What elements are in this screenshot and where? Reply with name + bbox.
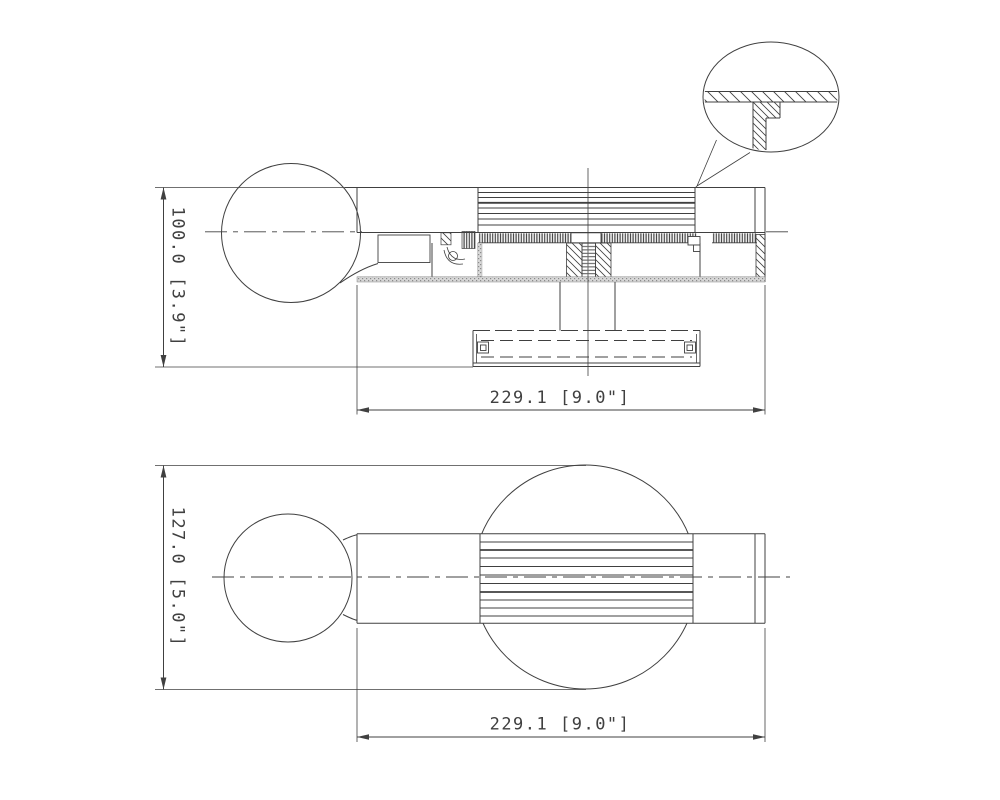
arrowhead-right bbox=[753, 734, 765, 740]
right-step-block-small bbox=[694, 245, 701, 252]
arrowhead-left bbox=[357, 407, 369, 413]
section-width-dim-text: 229.1 [9.0"] bbox=[490, 388, 631, 408]
section-view: 100.0 [3.9"] bbox=[155, 164, 792, 415]
arrowhead-up bbox=[161, 188, 167, 200]
detail-contents bbox=[703, 92, 839, 151]
plan-width-dim-text: 229.1 [9.0"] bbox=[490, 715, 631, 735]
wire-loop bbox=[449, 252, 458, 261]
lamp-body-section bbox=[222, 164, 766, 377]
inner-wall-left bbox=[478, 243, 483, 278]
plan-view: 127.0 [5.0"] 229.1 [9.0"] bbox=[155, 465, 790, 742]
section-width-dimension: 229.1 [9.0"] bbox=[357, 285, 765, 415]
detail-band-hatch bbox=[703, 92, 839, 103]
led-board-section bbox=[478, 233, 757, 243]
bolt-cap bbox=[571, 233, 601, 243]
bulb-neck-fillet-bottom bbox=[343, 615, 357, 621]
arrowhead-down bbox=[161, 355, 167, 367]
hub-block-left bbox=[567, 243, 583, 278]
arrowhead-left bbox=[357, 734, 369, 740]
bulb-outline-section bbox=[222, 164, 361, 303]
bulb-outline-plan bbox=[224, 514, 352, 642]
right-wall-hatched bbox=[756, 235, 765, 278]
bulb-neck-fillet-top bbox=[343, 535, 357, 540]
heatsink-fins-section bbox=[478, 188, 695, 233]
socket-assembly bbox=[441, 232, 475, 265]
section-height-dim-text: 100.0 [3.9"] bbox=[168, 207, 188, 348]
body-band-mask bbox=[357, 534, 765, 623]
arrowhead-up bbox=[161, 466, 167, 478]
driver-box bbox=[378, 235, 430, 263]
mounting-bracket bbox=[473, 331, 700, 367]
arrowhead-down bbox=[161, 678, 167, 690]
threaded-stem bbox=[582, 243, 596, 278]
plan-width-dimension: 229.1 [9.0"] bbox=[357, 628, 765, 742]
arrowhead-right bbox=[753, 407, 765, 413]
detail-bubble bbox=[696, 42, 840, 188]
hub-block-right bbox=[596, 243, 612, 278]
right-step-block bbox=[688, 237, 700, 246]
technical-drawing-canvas: 100.0 [3.9"] bbox=[0, 0, 1000, 800]
technical-drawing-page: 100.0 [3.9"] bbox=[0, 0, 1000, 800]
plan-height-dim-text: 127.0 [5.0"] bbox=[168, 507, 188, 648]
lens-strip bbox=[357, 277, 765, 282]
